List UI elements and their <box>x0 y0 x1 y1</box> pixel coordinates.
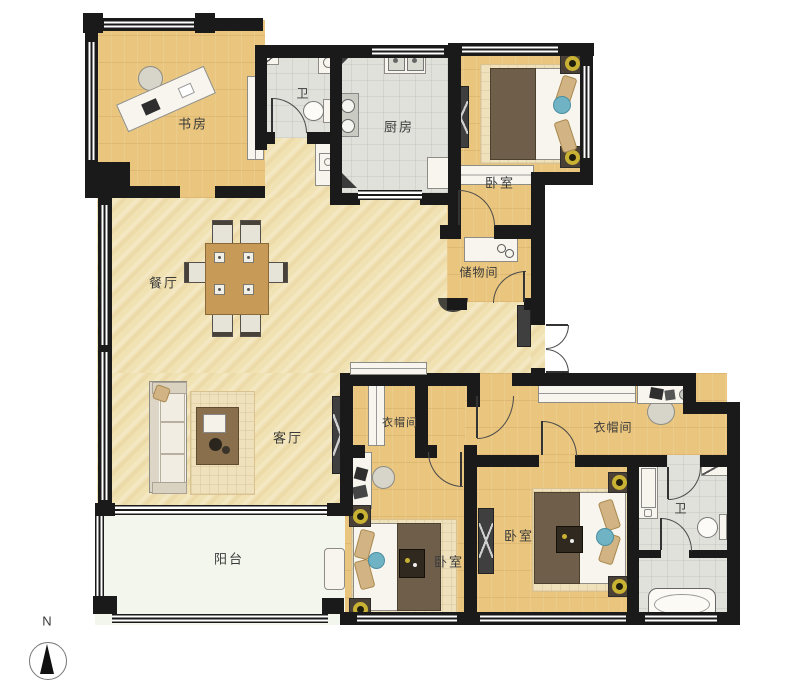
paper <box>178 83 195 99</box>
lamp-icon <box>612 579 627 594</box>
wall-segment <box>330 193 360 205</box>
room-label-study: 书房 <box>178 114 208 133</box>
toilet-tank <box>719 514 727 540</box>
wall-segment <box>98 162 130 198</box>
door-leaf[interactable] <box>271 98 273 132</box>
window <box>100 205 109 345</box>
lamp-icon <box>565 56 580 71</box>
lamp-icon <box>353 509 368 524</box>
entry-door-arc[interactable] <box>546 325 569 349</box>
folded-blanket <box>556 526 583 553</box>
drain-dot-2 <box>412 58 417 63</box>
entry-door-leaf[interactable] <box>546 324 568 326</box>
room-label-balcony: 阳台 <box>214 549 244 568</box>
cooker-dot-2 <box>505 249 514 258</box>
room-label-kitchen: 厨房 <box>384 117 414 136</box>
wall-segment <box>447 298 467 310</box>
balcony-window <box>115 505 327 515</box>
dot <box>405 558 410 563</box>
entry-door-leaf[interactable] <box>546 371 568 373</box>
wall-segment <box>340 445 365 458</box>
round-cushion <box>596 528 614 546</box>
tray <box>203 414 226 433</box>
place-setting <box>214 252 225 263</box>
wall-segment <box>639 455 667 467</box>
coffee-table <box>196 407 239 465</box>
monitor-icon <box>141 98 160 115</box>
door-leaf[interactable] <box>660 518 662 550</box>
wall-segment <box>322 598 344 614</box>
toilet <box>697 517 718 538</box>
dot-2 <box>570 539 574 543</box>
wall-segment <box>330 45 342 193</box>
entry-threshold <box>531 325 545 372</box>
burner-2 <box>341 119 355 133</box>
sofa-armrest <box>152 482 187 494</box>
sofa-cushion <box>160 422 185 454</box>
tv-cabinet <box>350 362 427 375</box>
cup-icon <box>222 446 230 454</box>
window <box>100 352 109 500</box>
wall-segment <box>95 503 115 516</box>
compass-north-label: N <box>42 614 51 629</box>
room-label-living: 客厅 <box>273 428 303 447</box>
wall-segment <box>494 225 536 239</box>
window <box>462 45 558 54</box>
room-label-bath-br: 卫 <box>674 500 687 517</box>
wall-segment <box>195 13 215 33</box>
door-leaf[interactable] <box>667 467 669 499</box>
balcony-window <box>95 516 104 596</box>
window <box>87 42 96 160</box>
toilet <box>303 101 324 121</box>
kitchen-sliding-door[interactable] <box>358 190 422 200</box>
dot-2 <box>413 563 417 567</box>
window <box>480 614 626 623</box>
entry-cabinet <box>517 305 531 347</box>
wall-segment <box>627 455 639 625</box>
dining-chair <box>240 312 261 337</box>
folded-blanket <box>399 549 425 578</box>
door-leaf[interactable] <box>541 421 543 455</box>
lamp-icon <box>612 475 627 490</box>
storage-cabinet <box>464 237 518 262</box>
room-label-cloak-left: 衣帽间 <box>382 414 418 430</box>
place-setting <box>243 252 254 263</box>
kettle-icon <box>209 438 222 451</box>
window <box>372 47 444 56</box>
vanity-stool <box>372 466 395 489</box>
cloak-right-closet <box>538 384 636 403</box>
room-label-dining: 餐厅 <box>149 273 179 292</box>
wall-segment <box>512 373 688 386</box>
wall-segment <box>727 402 740 625</box>
room-label-bath-top: 卫 <box>296 85 309 102</box>
burner <box>341 99 355 113</box>
balcony-window <box>112 614 328 623</box>
ac-unit-icon <box>478 508 494 574</box>
dining-chair <box>212 220 233 245</box>
book <box>664 389 675 400</box>
bath-br-sink <box>637 461 658 519</box>
door-leaf[interactable] <box>460 452 462 486</box>
dining-chair <box>240 220 261 245</box>
room-label-bedroom-br: 卧室 <box>504 526 534 545</box>
room-label-bedroom-bl: 卧室 <box>434 552 464 571</box>
wall-segment <box>420 193 450 205</box>
wall-segment <box>255 132 275 144</box>
place-setting <box>214 284 225 295</box>
wall-segment <box>440 225 452 239</box>
window <box>357 614 457 623</box>
place-setting <box>243 284 254 295</box>
wall-segment <box>477 455 539 467</box>
compass-needle-icon <box>40 644 54 674</box>
wall-segment <box>639 550 661 558</box>
wall-segment <box>340 373 353 510</box>
entry-door-arc[interactable] <box>546 349 569 373</box>
window <box>582 66 591 158</box>
window <box>645 614 717 623</box>
room-label-cloak-right: 衣帽间 <box>593 419 632 436</box>
drain-dot <box>393 58 398 63</box>
bedroom-tr-blanket <box>490 68 536 160</box>
room-label-bedroom-tr: 卧室 <box>485 173 515 192</box>
wall-segment <box>93 596 117 614</box>
wall-segment <box>327 503 353 516</box>
wall-segment <box>689 550 727 558</box>
door-leaf[interactable] <box>476 396 478 438</box>
basin <box>641 468 656 508</box>
laptop-icon <box>649 387 664 400</box>
door-leaf[interactable] <box>458 190 460 225</box>
room-label-storage: 储物间 <box>459 264 498 281</box>
window <box>104 20 194 29</box>
wall-segment <box>700 455 728 467</box>
wall-segment <box>215 186 265 198</box>
wall-segment <box>531 172 545 325</box>
dot <box>562 534 567 539</box>
door-leaf[interactable] <box>523 271 525 302</box>
round-cushion <box>553 96 571 114</box>
round-cushion <box>368 552 385 569</box>
wall-segment <box>464 445 477 625</box>
faucet-dot <box>644 509 652 517</box>
floor-plan: 书房 卫 厨房 卧室 储物间 餐厅 客厅 衣帽间 衣帽间 卧室 卧室 卫 阳台 … <box>0 0 788 692</box>
wall-segment <box>575 455 627 467</box>
dining-chair <box>212 312 233 337</box>
balcony-cabinet <box>324 548 345 590</box>
